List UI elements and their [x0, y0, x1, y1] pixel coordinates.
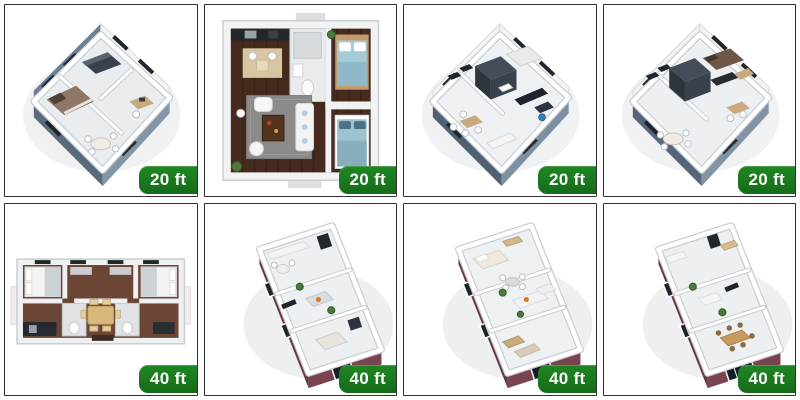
size-badge: 40 ft — [139, 365, 196, 393]
size-badge: 20 ft — [738, 166, 795, 194]
floorplan-tile-4[interactable]: 20 ft — [603, 4, 797, 197]
floorplan-tile-2[interactable]: 20 ft — [204, 4, 398, 197]
floorplan-tile-5[interactable]: 40 ft — [4, 203, 198, 396]
size-badge: 20 ft — [339, 166, 396, 194]
floorplan-tile-3[interactable]: 20 ft — [403, 4, 597, 197]
size-badge: 40 ft — [738, 365, 795, 393]
size-badge: 40 ft — [339, 365, 396, 393]
floorplan-tile-8[interactable]: 40 ft — [603, 203, 797, 396]
size-badge: 40 ft — [538, 365, 595, 393]
size-badge: 20 ft — [139, 166, 196, 194]
size-badge: 20 ft — [538, 166, 595, 194]
floorplan-tile-7[interactable]: 40 ft — [403, 203, 597, 396]
floorplan-grid: 20 ft — [0, 0, 800, 400]
floorplan-tile-6[interactable]: 40 ft — [204, 203, 398, 396]
floorplan-tile-1[interactable]: 20 ft — [4, 4, 198, 197]
